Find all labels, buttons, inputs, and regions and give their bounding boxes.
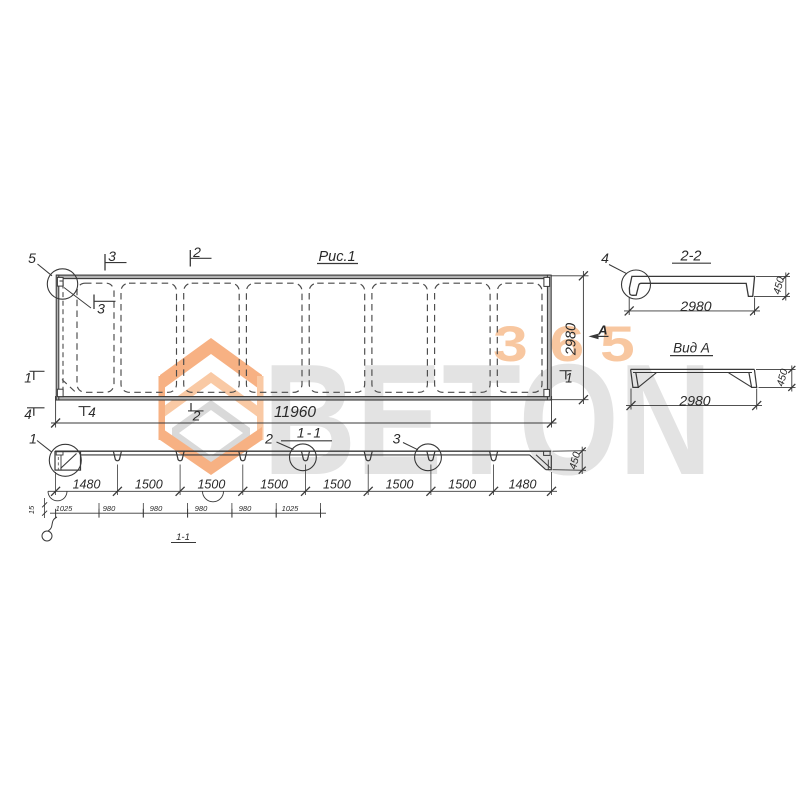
svg-text:980: 980 xyxy=(103,504,116,513)
svg-text:2: 2 xyxy=(192,244,201,260)
svg-text:2980: 2980 xyxy=(564,323,580,356)
svg-text:1025: 1025 xyxy=(282,504,300,513)
svg-text:2: 2 xyxy=(192,408,201,424)
svg-text:2-2: 2-2 xyxy=(680,249,702,265)
svg-text:1500: 1500 xyxy=(386,478,414,492)
svg-text:1500: 1500 xyxy=(260,478,288,492)
svg-text:2980: 2980 xyxy=(678,393,710,409)
svg-text:4: 4 xyxy=(88,405,96,420)
svg-text:2980: 2980 xyxy=(679,298,711,314)
svg-text:1500: 1500 xyxy=(135,478,163,492)
svg-text:1500: 1500 xyxy=(323,478,351,492)
svg-text:980: 980 xyxy=(150,504,163,513)
svg-text:15: 15 xyxy=(27,505,36,514)
svg-text:2: 2 xyxy=(264,431,273,447)
svg-text:1: 1 xyxy=(24,371,32,386)
svg-text:1480: 1480 xyxy=(73,478,101,492)
svg-text:1500: 1500 xyxy=(197,478,225,492)
svg-text:1-1: 1-1 xyxy=(297,425,323,441)
svg-text:980: 980 xyxy=(239,504,252,513)
svg-text:11960: 11960 xyxy=(274,404,316,421)
svg-text:3: 3 xyxy=(493,316,528,372)
svg-text:1-1: 1-1 xyxy=(176,532,190,543)
svg-text:980: 980 xyxy=(195,504,208,513)
svg-text:Рис.1: Рис.1 xyxy=(318,249,355,265)
svg-text:3: 3 xyxy=(393,431,401,447)
svg-text:1025: 1025 xyxy=(56,504,74,513)
svg-text:Вид А: Вид А xyxy=(673,341,710,356)
svg-text:3: 3 xyxy=(108,248,116,264)
svg-text:1480: 1480 xyxy=(509,478,537,492)
svg-text:А: А xyxy=(597,323,607,338)
svg-text:4: 4 xyxy=(24,407,32,422)
svg-text:4: 4 xyxy=(601,250,609,266)
svg-text:1: 1 xyxy=(29,431,37,447)
svg-text:3: 3 xyxy=(97,301,105,317)
svg-text:1500: 1500 xyxy=(448,478,476,492)
svg-text:1: 1 xyxy=(565,371,573,386)
svg-text:5: 5 xyxy=(28,250,36,266)
